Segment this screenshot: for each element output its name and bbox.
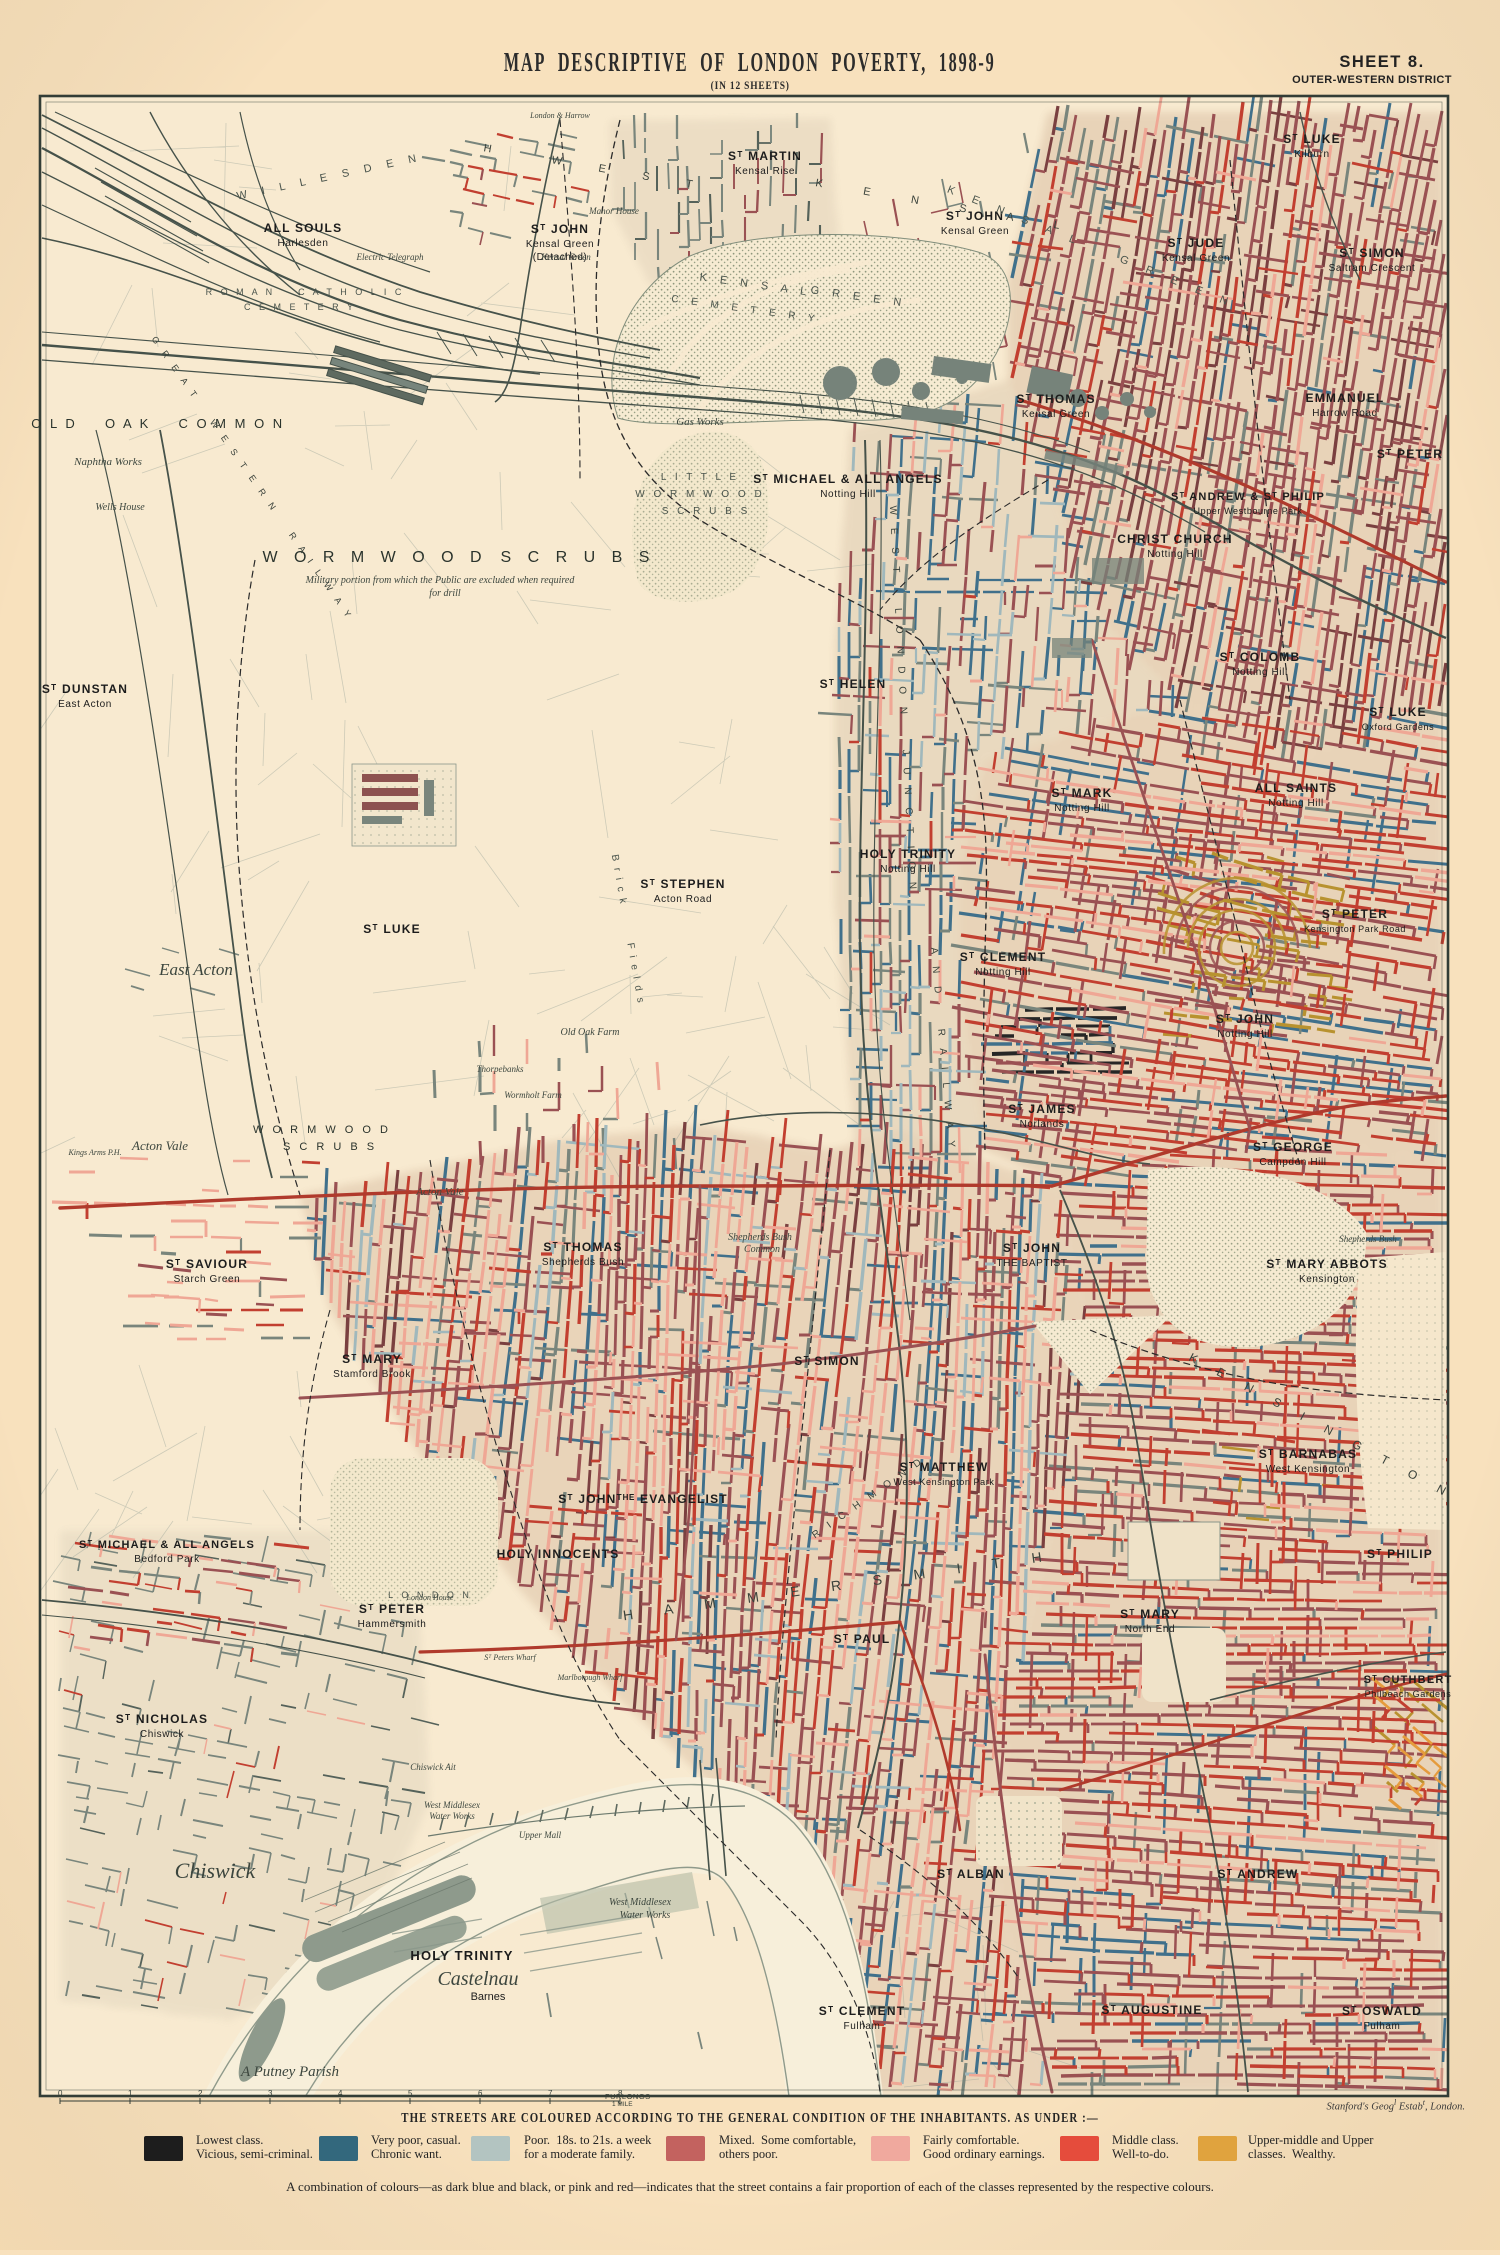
svg-text:S C R U B S: S C R U B S [283,1141,377,1153]
svg-text:Marlborough Wharf: Marlborough Wharf [557,1673,625,1682]
svg-text:Upper Westbourne Park: Upper Westbourne Park [1194,506,1303,516]
svg-text:North End: North End [1125,1624,1175,1635]
svg-text:Sᵀ LUKE: Sᵀ LUKE [363,922,421,936]
svg-text:W O R M W O O D: W O R M W O O D [253,1124,391,1136]
svg-text:Sᵀ HELEN: Sᵀ HELEN [820,677,887,691]
svg-text:Barnes: Barnes [471,1991,506,2003]
svg-text:Naphtha Works: Naphtha Works [73,456,142,468]
svg-text:2: 2 [198,2089,203,2098]
svg-text:Upper Mall: Upper Mall [519,1830,562,1840]
svg-text:Notting Hill: Notting Hill [975,967,1031,978]
svg-text:Sᵀ ALBAN: Sᵀ ALBAN [937,1867,1005,1881]
svg-text:Notting Hill: Notting Hill [1147,549,1203,560]
svg-text:3: 3 [268,2089,273,2098]
svg-text:CHRIST CHURCH: CHRIST CHURCH [1117,532,1233,546]
svg-text:Chiswick: Chiswick [175,1858,257,1883]
svg-text:Sᵀ STEPHEN: Sᵀ STEPHEN [640,877,725,891]
svg-text:West Middlesex: West Middlesex [424,1800,480,1810]
svg-text:Sᵀ COLOMB: Sᵀ COLOMB [1220,650,1301,664]
svg-text:4: 4 [338,2089,343,2098]
svg-text:ALL SOULS: ALL SOULS [264,221,343,235]
svg-text:Common: Common [744,1244,780,1255]
svg-text:R O M A N C A T H O L I C: R O M A N C A T H O L I C [206,287,405,297]
svg-text:Military portion from which th: Military portion from which the Public a… [305,575,576,586]
svg-text:Sᵀ DUNSTAN: Sᵀ DUNSTAN [42,682,128,696]
svg-text:Bedford Park: Bedford Park [134,1554,200,1565]
svg-text:Gas Works: Gas Works [676,416,724,428]
svg-text:Sᵀ PETER: Sᵀ PETER [359,1602,425,1616]
svg-text:6: 6 [478,2089,483,2098]
svg-text:Notting Hill: Notting Hill [1054,803,1110,814]
svg-text:Harlesden: Harlesden [278,238,329,249]
svg-text:Kensal Green: Kensal Green [526,239,594,250]
svg-text:Castelnau: Castelnau [437,1968,518,1990]
svg-text:Notting Hill: Notting Hill [1217,1029,1273,1040]
svg-text:London & Harrow: London & Harrow [529,111,590,120]
svg-text:Sᵀ THOMAS: Sᵀ THOMAS [543,1240,622,1254]
svg-text:Sᵀ LUKE: Sᵀ LUKE [1283,132,1341,146]
svg-text:1: 1 [128,2089,133,2098]
svg-text:Fulham: Fulham [1364,2021,1401,2032]
svg-text:Sᵀ CUTHBERT: Sᵀ CUTHBERT [1364,1674,1453,1686]
svg-text:Shepherds Bush: Shepherds Bush [728,1232,792,1243]
svg-text:Notting Hill: Notting Hill [1268,798,1324,809]
svg-text:HOLY TRINITY: HOLY TRINITY [410,1948,513,1963]
svg-text:L I T T L E: L I T T L E [661,472,739,483]
svg-text:Sᵀ AUGUSTINE: Sᵀ AUGUSTINE [1101,2003,1202,2017]
svg-text:Kensal Rise: Kensal Rise [735,166,795,177]
svg-text:Old Oak Farm: Old Oak Farm [561,1027,620,1038]
svg-text:Sᵀ CLEMENT: Sᵀ CLEMENT [960,950,1047,964]
svg-text:Sᵀ PETER: Sᵀ PETER [1377,447,1443,461]
svg-text:Sᵀ SAVIOUR: Sᵀ SAVIOUR [166,1257,248,1271]
svg-text:Sᵀ PETER: Sᵀ PETER [1322,907,1388,921]
svg-text:Hammersmith: Hammersmith [358,1619,427,1630]
svg-text:East Acton: East Acton [58,699,112,710]
svg-text:Electric Telegraph: Electric Telegraph [356,252,424,262]
svg-text:West Middlesex: West Middlesex [609,1897,672,1908]
svg-text:West Kensington: West Kensington [1266,1464,1350,1475]
svg-text:Sᵀ JAMES: Sᵀ JAMES [1008,1102,1075,1116]
svg-text:Sᵀ MARY ABBOTS: Sᵀ MARY ABBOTS [1266,1257,1388,1271]
svg-text:Sᵀ ANDREW & Sᵀ PHILIP: Sᵀ ANDREW & Sᵀ PHILIP [1171,491,1325,503]
svg-text:L O N D O N: L O N D O N [388,1590,472,1600]
svg-text:Water Works: Water Works [429,1811,475,1821]
svg-text:Chiswick: Chiswick [140,1729,185,1740]
svg-text:for drill: for drill [429,588,461,599]
svg-text:HOLY INNOCENTS: HOLY INNOCENTS [497,1547,620,1561]
svg-text:ALL SAINTS: ALL SAINTS [1255,781,1337,795]
svg-text:Kensal Green: Kensal Green [540,252,591,262]
svg-text:Sᵀ JOHN: Sᵀ JOHN [531,222,589,236]
svg-text:THE BAPTIST: THE BAPTIST [996,1258,1067,1269]
svg-text:W O R M W O O D: W O R M W O O D [262,549,487,566]
svg-text:7: 7 [548,2089,553,2098]
svg-text:Sᵀ MICHAEL & ALL ANGELS: Sᵀ MICHAEL & ALL ANGELS [753,472,942,486]
svg-text:Sᵀ JOHN: Sᵀ JOHN [1216,1012,1274,1026]
svg-text:Wormholt Farm: Wormholt Farm [504,1090,562,1100]
svg-text:EMMANUEL: EMMANUEL [1306,391,1385,405]
svg-text:C E M E T E R Y: C E M E T E R Y [244,302,356,312]
svg-text:Starch Green: Starch Green [174,1274,241,1285]
svg-text:Sᵀ MICHAEL & ALL ANGELS: Sᵀ MICHAEL & ALL ANGELS [79,1539,255,1551]
svg-text:Stamford Brook: Stamford Brook [333,1369,411,1380]
svg-text:Sᵀ BARNABAS: Sᵀ BARNABAS [1259,1447,1357,1461]
svg-text:Philbeach Gardens: Philbeach Gardens [1365,1689,1452,1699]
svg-text:5: 5 [408,2089,413,2098]
svg-text:Sᵀ SIMON: Sᵀ SIMON [1339,246,1404,260]
svg-text:Kensal Green: Kensal Green [1022,409,1090,420]
svg-text:Shepherds Bush: Shepherds Bush [1339,1234,1397,1244]
svg-text:Saltram Crescent: Saltram Crescent [1329,263,1416,274]
svg-text:O L D O A K C O M M O N: O L D O A K C O M M O N [31,416,284,431]
svg-text:East Acton: East Acton [158,960,233,979]
svg-text:S C R U B S: S C R U B S [662,506,751,517]
svg-text:Sᵀ MARTIN: Sᵀ MARTIN [728,149,802,163]
svg-text:Chiswick Ait: Chiswick Ait [410,1762,456,1772]
svg-text:West Kensington Park: West Kensington Park [894,1477,995,1487]
svg-text:Sᵀ THOMAS: Sᵀ THOMAS [1016,392,1095,406]
svg-text:Sᵀ MARY: Sᵀ MARY [1120,1607,1180,1621]
svg-text:A Putney Parish: A Putney Parish [240,2064,339,2080]
svg-text:Sᵀ NICHOLAS: Sᵀ NICHOLAS [116,1712,208,1726]
svg-text:0: 0 [58,2089,63,2098]
svg-text:Sᵀ LUKE: Sᵀ LUKE [1369,705,1427,719]
svg-text:Notting Hill: Notting Hill [1232,667,1288,678]
svg-text:Fulham: Fulham [844,2021,881,2032]
svg-text:W O R M W O O D: W O R M W O O D [635,489,764,500]
svg-text:Notting Hill: Notting Hill [820,489,876,500]
svg-text:Water Works: Water Works [620,1910,671,1921]
svg-text:Oxford Gardens: Oxford Gardens [1362,722,1434,732]
svg-text:Kings Arms P.H.: Kings Arms P.H. [67,1148,121,1157]
svg-text:Campden Hill: Campden Hill [1259,1157,1326,1168]
svg-text:Sᵀ JOHN: Sᵀ JOHN [1003,1241,1061,1255]
svg-text:Kensal Green: Kensal Green [1162,253,1230,264]
svg-text:Shepherds Bush: Shepherds Bush [542,1257,624,1268]
svg-text:Sᵀ PHILIP: Sᵀ PHILIP [1367,1547,1433,1561]
svg-text:Kilburn: Kilburn [1294,149,1329,160]
svg-text:Norlands: Norlands [1020,1119,1065,1130]
svg-text:Sᵀ PAUL: Sᵀ PAUL [834,1632,891,1646]
svg-text:Acton Vale: Acton Vale [131,1138,188,1153]
svg-text:S C R U B S: S C R U B S [501,549,656,566]
svg-text:Acton Road: Acton Road [654,894,712,905]
svg-text:Sᵀ MARK: Sᵀ MARK [1052,786,1113,800]
svg-text:Sᵀ OSWALD: Sᵀ OSWALD [1342,2004,1422,2018]
svg-text:Sᵀ MARY: Sᵀ MARY [342,1352,402,1366]
svg-text:Acton Vale: Acton Vale [415,1186,463,1198]
svg-text:Sᵀ ANDREW: Sᵀ ANDREW [1218,1867,1299,1881]
svg-text:Sᵀ GEORGE: Sᵀ GEORGE [1253,1140,1333,1154]
svg-text:Sᵀ Peters Wharf: Sᵀ Peters Wharf [484,1653,537,1662]
svg-text:Kensal Green: Kensal Green [941,226,1009,237]
svg-text:Kensington Park Road: Kensington Park Road [1304,924,1406,934]
svg-text:Thorpebanks: Thorpebanks [477,1064,524,1074]
svg-text:Sᵀ JUDE: Sᵀ JUDE [1168,236,1225,250]
svg-text:Sᵀ CLEMENT: Sᵀ CLEMENT [819,2004,906,2018]
svg-text:Wells House: Wells House [95,502,145,513]
svg-text:Harrow Road: Harrow Road [1312,408,1378,419]
svg-text:Manor House: Manor House [588,206,639,216]
svg-text:Sᵀ JOHNᵀᴴᴱ EVANGELIST: Sᵀ JOHNᵀᴴᴱ EVANGELIST [558,1492,728,1506]
svg-text:Sᵀ SIMON: Sᵀ SIMON [794,1354,859,1368]
svg-text:Kensington: Kensington [1299,1274,1355,1285]
